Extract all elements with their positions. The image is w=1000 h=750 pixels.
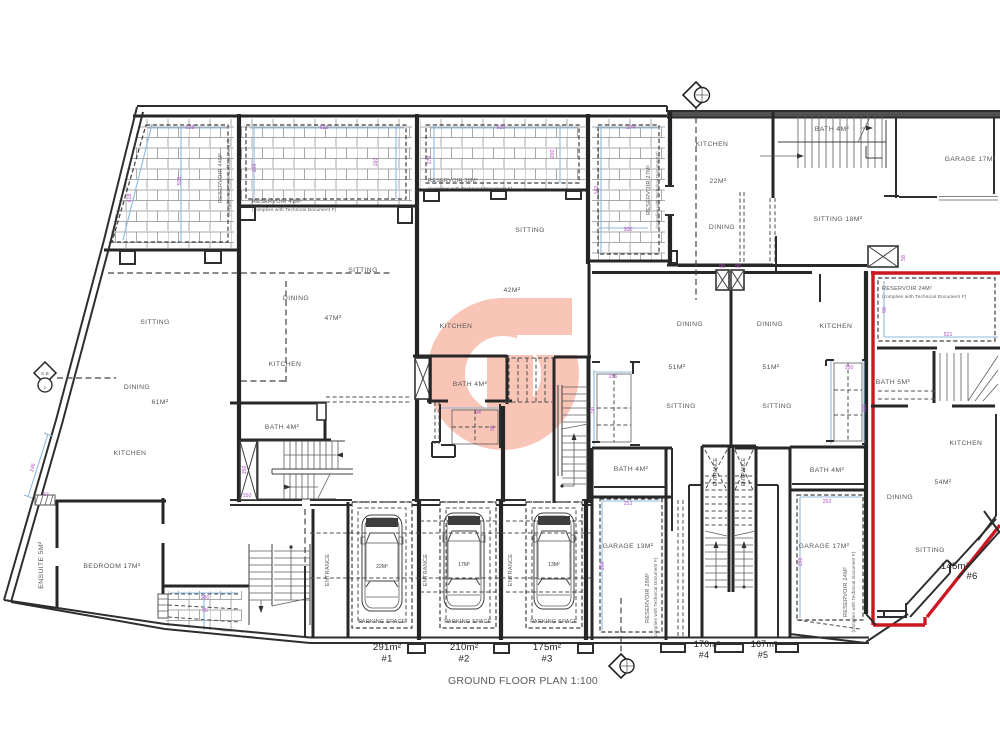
svg-text:(complies with Technical Docum: (complies with Technical Document F): [851, 551, 856, 632]
svg-text:58: 58: [590, 407, 596, 413]
svg-text:95: 95: [490, 425, 496, 431]
svg-text:61M²: 61M²: [151, 399, 168, 406]
svg-text:619: 619: [320, 125, 329, 131]
svg-text:156: 156: [609, 374, 618, 380]
svg-text:BATH 4M²: BATH 4M²: [815, 126, 850, 133]
svg-text:#1: #1: [381, 654, 392, 665]
svg-text:(complies with Technical Docum: (complies with Technical Document F): [655, 151, 660, 229]
svg-text:51M²: 51M²: [668, 364, 685, 371]
svg-text:DINING: DINING: [887, 494, 913, 501]
svg-text:#4: #4: [699, 650, 709, 660]
svg-text:58: 58: [882, 307, 888, 313]
svg-text:BATH 4M²: BATH 4M²: [265, 424, 300, 431]
svg-text:150: 150: [845, 365, 854, 371]
svg-text:150: 150: [242, 466, 248, 475]
svg-text:#5: #5: [758, 650, 768, 660]
svg-text:KITCHEN: KITCHEN: [114, 450, 147, 457]
svg-text:252: 252: [823, 499, 832, 505]
svg-text:58: 58: [901, 255, 907, 261]
svg-text:RESERVOIR 41M²: RESERVOIR 41M²: [252, 199, 302, 205]
svg-text:1: 1: [44, 385, 47, 390]
svg-text:170m²: 170m²: [694, 639, 721, 649]
svg-text:90: 90: [735, 264, 741, 270]
svg-text:BATH 4M²: BATH 4M²: [810, 467, 845, 474]
svg-text:KITCHEN: KITCHEN: [950, 440, 983, 447]
svg-text:22M²: 22M²: [376, 564, 388, 570]
svg-text:150: 150: [600, 562, 606, 571]
svg-text:KITCHEN: KITCHEN: [440, 323, 473, 330]
svg-text:KITCHEN: KITCHEN: [820, 323, 853, 330]
svg-text:SITTING: SITTING: [915, 547, 945, 554]
svg-text:(complies with Technical Docum: (complies with Technical Document F): [882, 294, 967, 299]
svg-text:BEDROOM 17M²: BEDROOM 17M²: [83, 563, 141, 570]
svg-text:#6: #6: [966, 571, 977, 582]
svg-text:ENTRANCE: ENTRANCE: [423, 554, 429, 586]
svg-text:ENTRANCE: ENTRANCE: [741, 457, 747, 486]
svg-text:GROUND FLOOR PLAN 1:100: GROUND FLOOR PLAN 1:100: [448, 675, 598, 687]
svg-text:300: 300: [624, 227, 633, 233]
svg-text:278: 278: [427, 156, 433, 165]
svg-text:GARAGE 13M²: GARAGE 13M²: [603, 543, 654, 550]
svg-text:SITTING: SITTING: [666, 403, 696, 410]
svg-text:380: 380: [201, 595, 210, 601]
svg-text:SITTING 18M²: SITTING 18M²: [814, 216, 863, 223]
svg-text:ENSUITE 5M²: ENSUITE 5M²: [38, 541, 45, 589]
svg-text:150: 150: [243, 493, 252, 499]
svg-text:54M²: 54M²: [934, 479, 951, 486]
svg-text:RESERVOIR 24M²: RESERVOIR 24M²: [843, 567, 849, 617]
svg-text:SITTING: SITTING: [515, 227, 545, 234]
svg-text:DINING: DINING: [677, 321, 703, 328]
svg-text:291m²: 291m²: [373, 642, 402, 653]
svg-text:ENTRANCE: ENTRANCE: [508, 554, 514, 586]
svg-text:SITTING: SITTING: [140, 319, 170, 326]
svg-text:RESERVOIR 38M²: RESERVOIR 38M²: [428, 178, 478, 184]
svg-text:PARKING SPACE: PARKING SPACE: [444, 619, 492, 625]
svg-text:90: 90: [719, 264, 725, 270]
svg-text:#2: #2: [458, 654, 469, 665]
svg-text:GARAGE 17M²: GARAGE 17M²: [945, 156, 996, 163]
svg-text:RESERVOIR 26M²: RESERVOIR 26M²: [645, 573, 651, 623]
svg-text:(complies with Technical Docum: (complies with Technical Document F): [226, 139, 231, 217]
svg-text:KITCHEN: KITCHEN: [269, 361, 302, 368]
svg-text:SITTING: SITTING: [762, 403, 792, 410]
svg-text:ENTRANCE: ENTRANCE: [325, 554, 331, 586]
svg-text:ENTRANCE: ENTRANCE: [713, 457, 719, 486]
svg-text:618: 618: [127, 194, 133, 203]
svg-text:DINING: DINING: [283, 295, 309, 302]
svg-text:200: 200: [550, 150, 556, 159]
svg-text:175m²: 175m²: [533, 642, 562, 653]
svg-text:(complies with Technical Docum: (complies with Technical Document F): [653, 557, 658, 638]
svg-text:17M²: 17M²: [458, 562, 470, 568]
svg-text:142: 142: [594, 186, 600, 195]
svg-text:RESERVOIR 44M²: RESERVOIR 44M²: [218, 153, 224, 203]
svg-text:BATH 4M²: BATH 4M²: [453, 381, 488, 388]
svg-text:PARKING SPACE: PARKING SPACE: [530, 619, 578, 625]
svg-text:RESERVOIR 24M²: RESERVOIR 24M²: [882, 286, 932, 292]
svg-text:DINING: DINING: [757, 321, 783, 328]
svg-text:DINING: DINING: [124, 384, 150, 391]
svg-text:500: 500: [177, 177, 183, 186]
svg-text:S.B: S.B: [41, 371, 49, 376]
svg-text:610: 610: [497, 125, 506, 131]
svg-text:521: 521: [944, 332, 953, 338]
svg-text:GARAGE 17M²: GARAGE 17M²: [799, 543, 850, 550]
svg-text:47M²: 47M²: [324, 315, 341, 322]
svg-text:95: 95: [202, 608, 208, 614]
svg-text:DINING: DINING: [709, 224, 735, 231]
svg-text:BATH 5M²: BATH 5M²: [876, 379, 911, 386]
svg-text:42M²: 42M²: [503, 287, 520, 294]
svg-text:PARKING SPACE: PARKING SPACE: [358, 619, 406, 625]
svg-text:51M²: 51M²: [762, 364, 779, 371]
svg-text:210m²: 210m²: [450, 642, 479, 653]
svg-text:160: 160: [373, 158, 379, 167]
svg-text:22M²: 22M²: [709, 178, 726, 185]
svg-text:64: 64: [43, 492, 49, 498]
svg-text:150: 150: [798, 558, 804, 567]
svg-text:252: 252: [624, 501, 633, 507]
svg-text:167m²: 167m²: [751, 639, 778, 649]
svg-text:RESERVOIR 27M²: RESERVOIR 27M²: [646, 165, 652, 215]
svg-text:BATH 4M²: BATH 4M²: [614, 466, 649, 473]
svg-text:SITTING: SITTING: [348, 267, 378, 274]
svg-text:64: 64: [475, 410, 481, 416]
svg-text:274: 274: [627, 125, 636, 131]
svg-text:519: 519: [186, 125, 195, 131]
svg-text:300: 300: [252, 164, 258, 173]
svg-text:(complies with Technical Docum: (complies with Technical Document F): [252, 207, 337, 212]
svg-text:13M²: 13M²: [548, 562, 560, 568]
svg-text:300: 300: [862, 404, 868, 413]
svg-text:KITCHEN: KITCHEN: [696, 141, 729, 148]
svg-text:145m²: 145m²: [941, 561, 970, 572]
svg-text:#3: #3: [541, 654, 552, 665]
